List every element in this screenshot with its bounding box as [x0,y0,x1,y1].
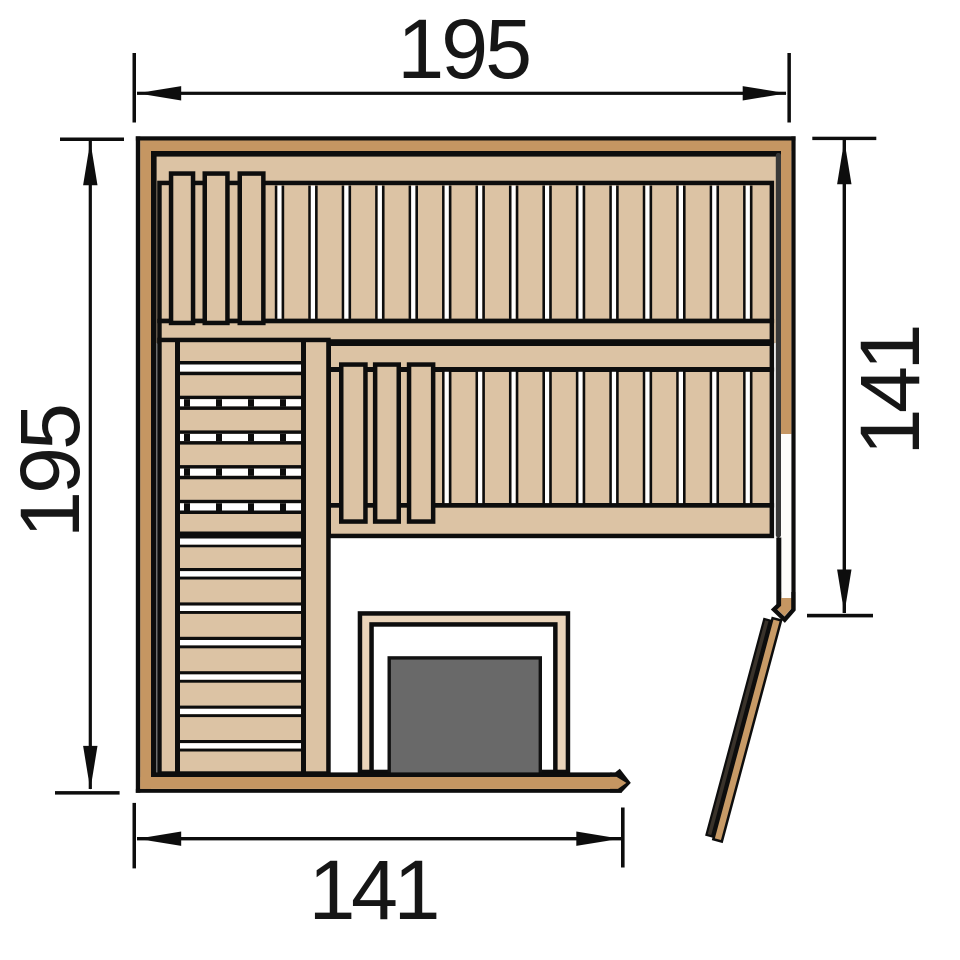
svg-text:141: 141 [843,327,937,455]
svg-text:141: 141 [309,843,437,937]
svg-text:195: 195 [3,406,97,538]
svg-text:195: 195 [397,2,529,96]
